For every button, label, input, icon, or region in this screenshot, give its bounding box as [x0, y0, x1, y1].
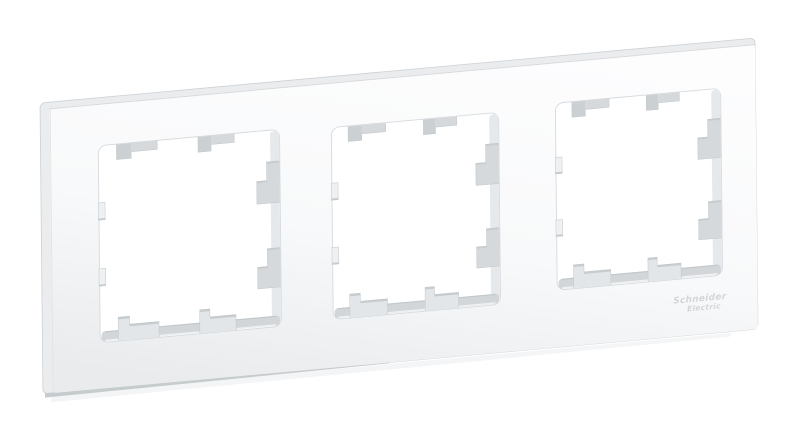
opening-2-right-wall	[489, 114, 500, 303]
opening-3	[555, 88, 722, 290]
opening-3-right-tab-1-lower	[698, 136, 721, 160]
opening-1-right-tab-1-upper	[266, 161, 279, 181]
opening-3-left-nub-2	[556, 220, 563, 237]
opening-2-bottom-tab-1-step	[350, 293, 361, 317]
opening-1-top-tab-2-step	[198, 136, 211, 152]
opening-3-right-wall	[711, 90, 722, 274]
opening-3-top-tab-1-step	[572, 101, 586, 117]
opening-3-right-tab-2-lower	[699, 217, 722, 240]
product-photo-switch-frame: Schneider Electric	[0, 0, 800, 446]
product-image-container: Schneider Electric	[0, 0, 800, 446]
opening-2	[331, 112, 500, 319]
opening-3-bottom-tab-1-step	[574, 264, 585, 288]
opening-3-right-tab-1-upper	[708, 118, 721, 137]
opening-1-right-tab-1-lower	[257, 179, 280, 204]
opening-1	[98, 129, 281, 342]
opening-2-right-tab-2-lower	[477, 245, 500, 268]
opening-2-left-nub-2	[332, 247, 339, 265]
opening-1-bottom-tab-1-step	[118, 316, 130, 341]
opening-1-right-tab-2-lower	[258, 265, 281, 289]
opening-2-top-tab-2-step	[423, 119, 435, 135]
opening-3-left-nub-1	[555, 157, 562, 174]
opening-2-bottom-tab-2-step	[425, 286, 435, 310]
opening-1-left-nub-1	[98, 202, 105, 220]
opening-2-top-tab-1-step	[348, 125, 362, 141]
opening-1-top-tab-1-step	[116, 143, 131, 159]
opening-2-right-tab-1-lower	[476, 161, 499, 185]
opening-3-right-tab-2-upper	[708, 200, 721, 219]
opening-1-left-nub-2	[99, 268, 106, 286]
opening-2-right-tab-1-upper	[486, 143, 499, 163]
opening-1-bottom-tab-2-step	[200, 309, 210, 333]
opening-3-top-tab-2-step	[646, 94, 658, 110]
opening-2-right-tab-2-upper	[486, 228, 499, 247]
opening-2-left-nub-1	[331, 183, 338, 201]
opening-1-right-tab-2-upper	[267, 248, 280, 267]
opening-3-bottom-tab-2-step	[648, 257, 657, 281]
